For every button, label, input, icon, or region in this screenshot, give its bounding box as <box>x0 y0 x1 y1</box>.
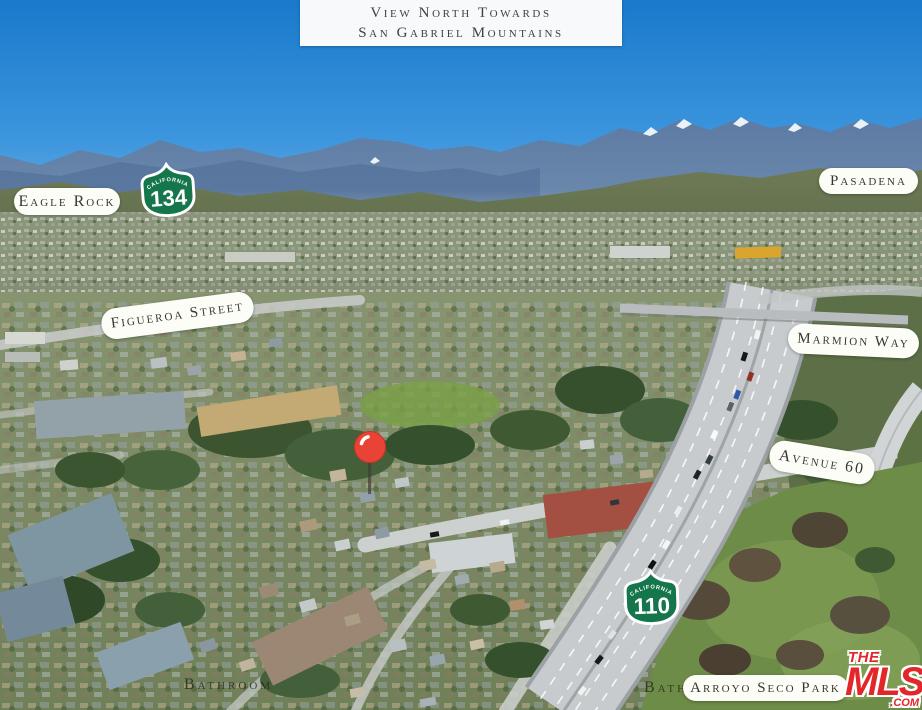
watermark-bath-partial: Bath <box>644 679 688 697</box>
mls-logo: THE MLS ™ .COM <box>845 650 921 709</box>
caption-line-2: San Gabriel Mountains <box>358 23 564 43</box>
label-pasadena: Pasadena <box>819 168 918 194</box>
label-arroyo-seco-park: Arroyo Seco Park <box>683 675 848 701</box>
view-caption-box: View North Towards San Gabriel Mountains <box>300 0 622 46</box>
highway-shield-110-icon: California 110 <box>620 568 683 627</box>
mls-logo-word: MLS <box>845 662 922 702</box>
aerial-listing-photo: View North Towards San Gabriel Mountains… <box>0 0 922 710</box>
label-marmion-way: Marmion Way <box>787 323 919 359</box>
shield-134-route: 134 <box>149 184 188 212</box>
shield-110-route: 110 <box>633 593 670 619</box>
highway-shield-134-icon: California 134 <box>137 160 199 220</box>
watermark-bathroom: Bathroom <box>184 676 273 694</box>
caption-line-1: View North Towards <box>370 3 551 23</box>
urban-sprawl <box>0 212 922 304</box>
label-eagle-rock: Eagle Rock <box>14 188 120 215</box>
aerial-scene <box>0 0 922 710</box>
property-pin-icon <box>352 430 388 500</box>
